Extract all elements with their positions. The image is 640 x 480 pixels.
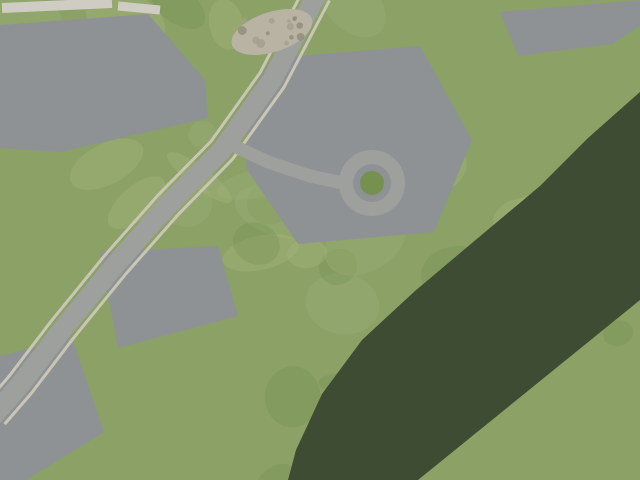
satellite-map-canvas[interactable]: [0, 0, 640, 480]
map-viewport: [0, 0, 640, 480]
loop-island: [360, 171, 384, 195]
carport-roof: [118, 6, 160, 10]
carport-roof: [2, 3, 112, 8]
